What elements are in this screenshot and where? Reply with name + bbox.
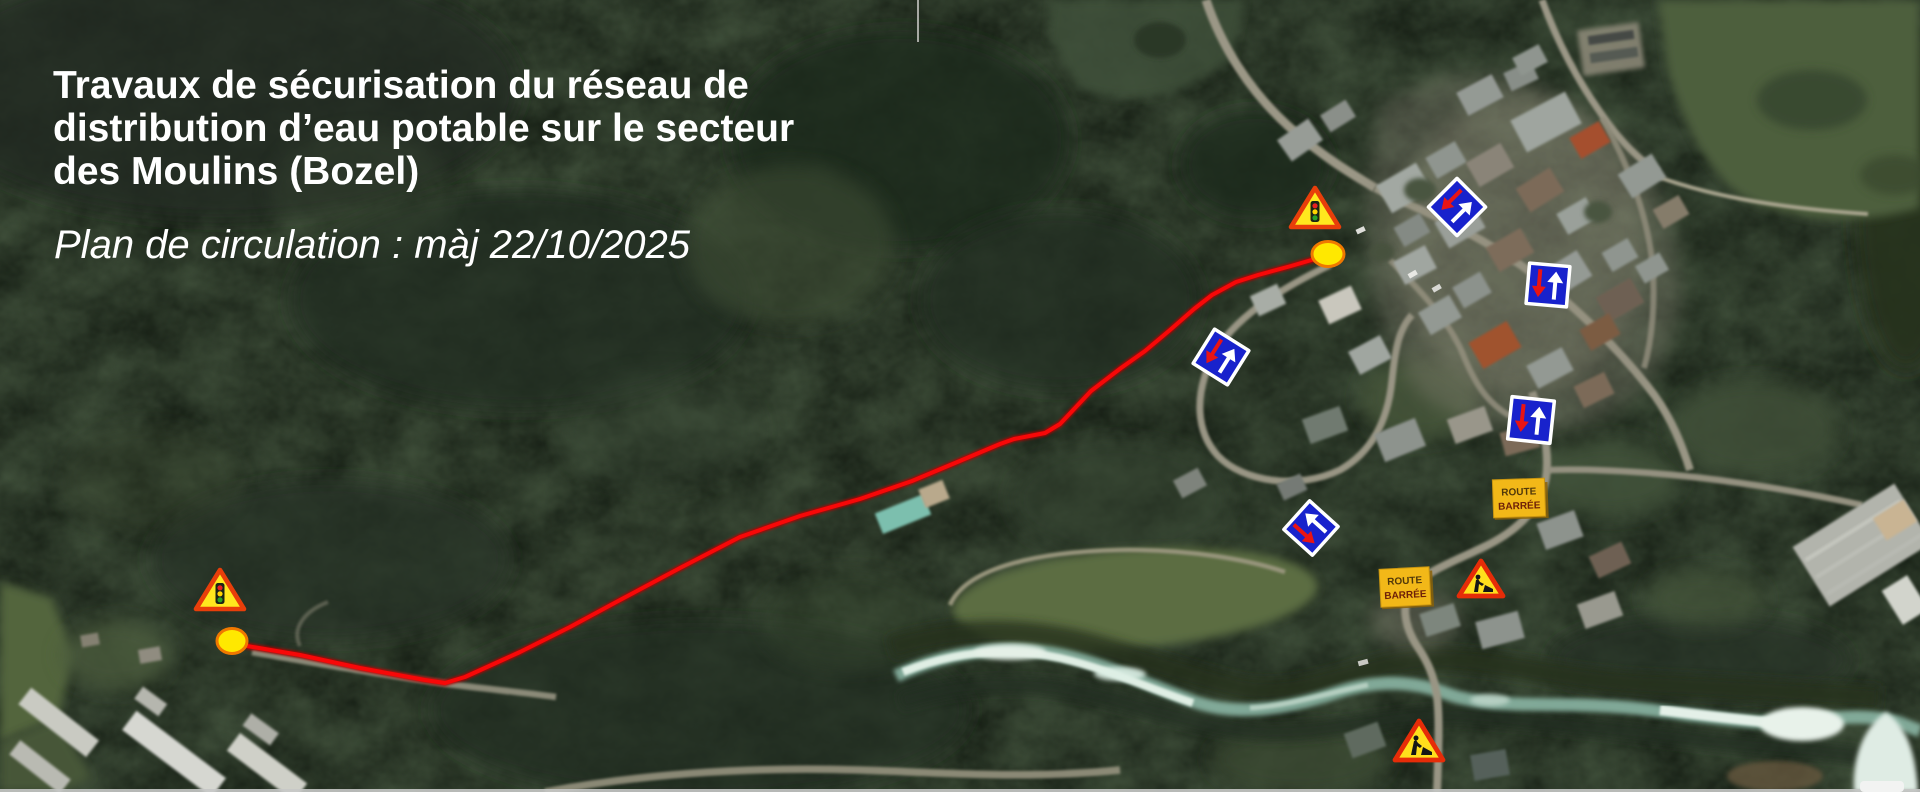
svg-text:ROUTE: ROUTE — [1387, 575, 1423, 588]
svg-text:Travaux de sécurisation du rés: Travaux de sécurisation du réseau de — [53, 64, 749, 107]
svg-text:des Moulins (Bozel): des Moulins (Bozel) — [53, 150, 419, 193]
svg-text:distribution d’eau potable sur: distribution d’eau potable sur le secteu… — [53, 107, 794, 150]
svg-text:ROUTE: ROUTE — [1501, 486, 1537, 498]
svg-text:Plan de circulation : màj 22/1: Plan de circulation : màj 22/10/2025 — [54, 223, 691, 267]
